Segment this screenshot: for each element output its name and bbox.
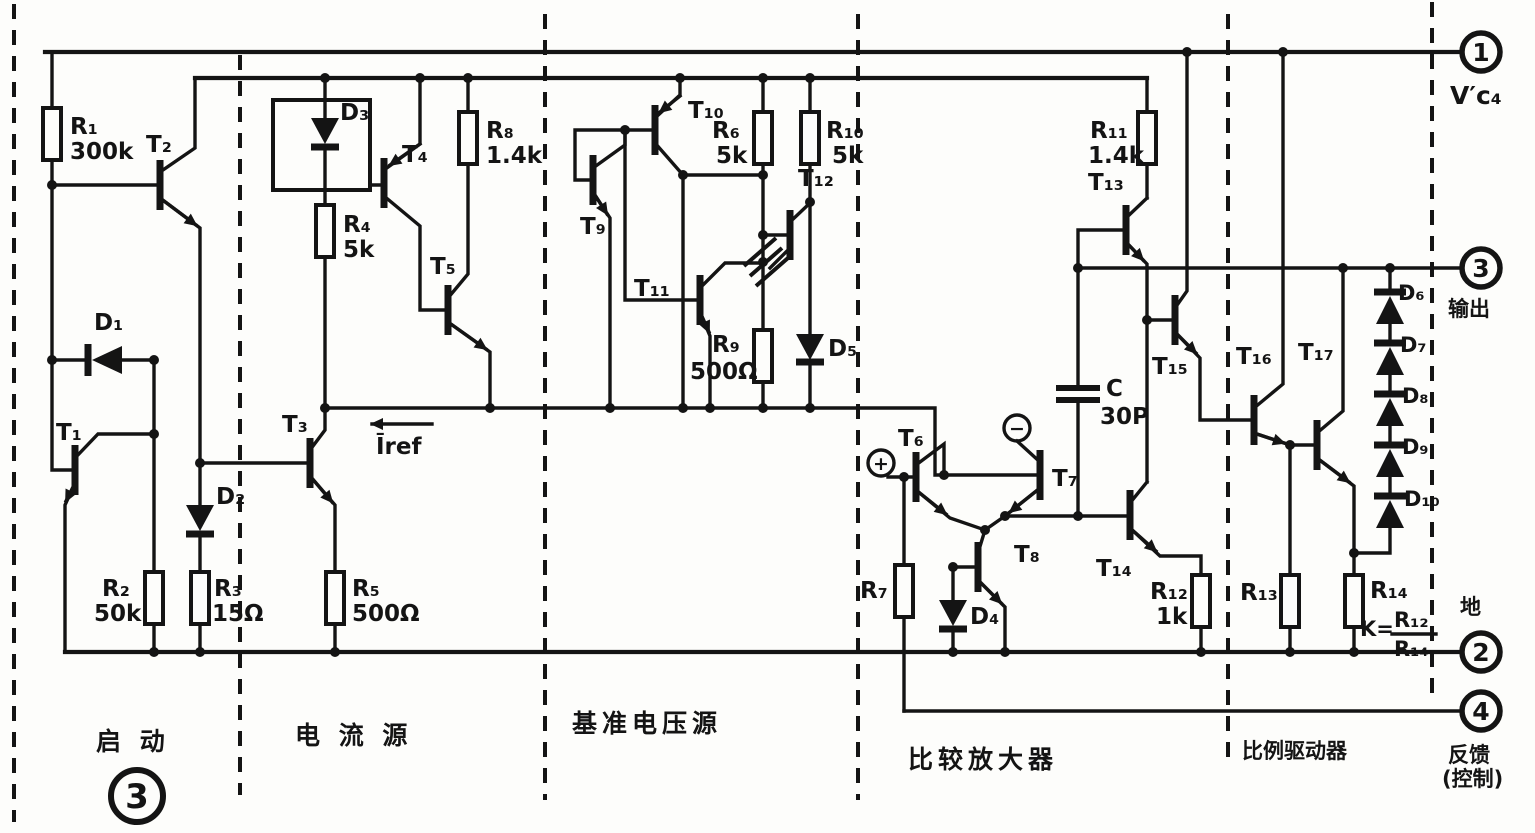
diode-D6-label: D₆	[1398, 281, 1425, 305]
transistor-T8-label: T₈	[1014, 542, 1040, 568]
transistor-T4-label: T₄	[402, 142, 428, 168]
resistor-R9: R₉ 500Ω	[690, 330, 772, 385]
iref-annotation: Īref	[372, 424, 432, 460]
resistor-R2: R₂ 50k	[94, 572, 163, 627]
transistor-T4: T₄	[384, 142, 428, 208]
transistor-T9: T₉	[580, 155, 606, 240]
resistor-R10: R₁₀ 5k	[801, 112, 864, 169]
transistor-T15-label: T₁₅	[1152, 354, 1188, 380]
diode-D3: D₃	[273, 100, 370, 190]
resistor-R2-value: 50k	[94, 601, 142, 627]
transistor-T16-label: T₁₆	[1236, 344, 1272, 370]
transistor-T6-label: T₆	[898, 426, 924, 452]
gain-formula-denominator: R₁₄	[1394, 637, 1429, 661]
resistor-R3-name: R₃	[214, 576, 242, 602]
diode-D4-label: D₄	[970, 604, 999, 630]
capacitor-C-value: 30P	[1100, 404, 1149, 430]
resistor-R12: R₁₂ 1k	[1150, 575, 1210, 630]
resistor-R11-name: R₁₁	[1090, 118, 1128, 144]
section-comparator-amplifier: 比较放大器	[908, 745, 1058, 774]
resistor-R11: R₁₁ 1.4k	[1088, 112, 1156, 169]
resistor-R5: R₅ 500Ω	[326, 572, 420, 627]
transistor-T2: T₂	[146, 132, 172, 210]
resistor-R10-value: 5k	[832, 143, 864, 169]
transistor-T9-label: T₉	[580, 214, 606, 240]
diode-D2-label: D₂	[216, 484, 245, 510]
resistor-R8-name: R₈	[486, 118, 514, 144]
resistor-R14-name: R₁₄	[1370, 578, 1408, 604]
minus-input-mark: −	[1009, 418, 1025, 440]
resistor-R8-value: 1.4k	[486, 143, 543, 169]
figure-number: 3	[125, 777, 149, 817]
resistor-R13: R₁₃	[1240, 575, 1299, 627]
transistor-T12-label: T₁₂	[798, 166, 834, 192]
diode-D1: D₁	[88, 310, 123, 376]
transistor-T7-label: T₇	[1052, 466, 1078, 492]
terminal-1-label: V′c₄	[1450, 81, 1502, 110]
resistor-R7-name: R₇	[860, 578, 888, 604]
transistor-T14: T₁₄	[1096, 490, 1132, 582]
circuit-schematic-canvas: T₁ T₂ T₃ T₄ T₅ T₆ T₇ T₈ T₉ T₁₀ T₁₁	[0, 0, 1535, 833]
iref-label: Īref	[376, 432, 422, 460]
resistor-R1-value: 300k	[70, 139, 134, 165]
terminal-1: 1 V′c₄	[1450, 33, 1502, 110]
diode-D1-label: D₁	[94, 310, 123, 336]
resistor-R12-value: 1k	[1156, 604, 1188, 630]
terminal-2: 2 地	[1460, 595, 1500, 671]
resistor-R6-value: 5k	[716, 143, 748, 169]
resistor-R6-name: R₆	[712, 118, 740, 144]
capacitor-C-name: C	[1106, 376, 1123, 402]
resistor-R3-value: 15Ω	[212, 601, 264, 627]
section-current-source: 电 流 源	[295, 721, 412, 750]
diode-chain: D₆ D₇ D₈ D₉ D₁₀	[1374, 281, 1440, 528]
resistor-R13-name: R₁₃	[1240, 580, 1278, 606]
terminal-1-number: 1	[1472, 38, 1489, 67]
diode-D10-label: D₁₀	[1404, 487, 1440, 511]
resistor-R6: R₆ 5k	[712, 112, 772, 169]
transistor-T17: T₁₇	[1298, 340, 1334, 470]
schematic-figure: T₁ T₂ T₃ T₄ T₅ T₆ T₇ T₈ T₉ T₁₀ T₁₁	[0, 0, 1535, 833]
comparator-input-marks: + −	[868, 415, 1030, 476]
resistor-R12-name: R₁₂	[1150, 579, 1188, 605]
diode-D2: D₂	[186, 484, 245, 534]
transistor-T7: T₇	[1040, 450, 1078, 500]
resistor-R9-value: 500Ω	[690, 359, 758, 385]
transistor-T16: T₁₆	[1236, 344, 1272, 445]
resistor-R3: R₃ 15Ω	[191, 572, 264, 627]
transistor-T5-label: T₅	[430, 254, 456, 280]
gain-formula-numerator: R₁₂	[1394, 608, 1429, 632]
section-startup: 启 动	[96, 727, 170, 756]
transistor-T13-label: T₁₃	[1088, 170, 1124, 196]
transistor-T1: T₁	[56, 420, 82, 495]
resistor-R14: R₁₄ K= R₁₂ R₁₄	[1345, 575, 1436, 661]
terminal-3-label: 输出	[1448, 297, 1490, 321]
diode-D4: D₄	[939, 600, 999, 630]
gain-formula-k: K=	[1360, 617, 1394, 641]
resistor-R7: R₇	[860, 565, 913, 617]
terminal-2-number: 2	[1472, 638, 1489, 667]
resistor-R5-name: R₅	[352, 576, 380, 602]
transistor-T13: T₁₃	[1088, 170, 1126, 255]
resistor-R4-value: 5k	[343, 237, 375, 263]
transistor-T14-label: T₁₄	[1096, 556, 1132, 582]
figure-number-badge: 3	[111, 770, 163, 822]
transistor-T11-label: T₁₁	[634, 276, 670, 302]
resistor-R8: R₈ 1.4k	[459, 112, 543, 169]
diode-D7-label: D₇	[1400, 333, 1427, 357]
diode-D9-label: D₉	[1402, 435, 1429, 459]
terminal-4: 4 反馈 (控制)	[1442, 692, 1503, 791]
transistor-T12: T₁₂	[744, 166, 834, 286]
resistor-R2-name: R₂	[102, 576, 130, 602]
resistor-R5-value: 500Ω	[352, 601, 420, 627]
plus-input-mark: +	[873, 453, 889, 475]
section-proportional-driver: 比例驱动器	[1242, 739, 1348, 763]
terminal-4-number: 4	[1472, 697, 1489, 726]
transistor-arrows	[66, 96, 1349, 603]
transistor-T3-label: T₃	[282, 412, 308, 438]
terminal-2-label: 地	[1460, 595, 1481, 619]
diode-D5-label: D₅	[828, 336, 857, 362]
capacitor-C: C 30P	[1056, 376, 1149, 430]
resistor-R1-name: R₁	[70, 114, 98, 140]
resistor-R1: R₁ 300k	[43, 108, 134, 165]
terminal-4-label: 反馈	[1448, 743, 1490, 767]
transistor-T17-label: T₁₇	[1298, 340, 1334, 366]
diode-D3-label: D₃	[340, 100, 369, 126]
section-captions: 启 动 电 流 源 基准电压源 比较放大器 比例驱动器	[96, 709, 1348, 774]
resistor-R10-name: R₁₀	[826, 118, 864, 144]
transistor-T2-label: T₂	[146, 132, 172, 158]
transistor-T1-label: T₁	[56, 420, 82, 446]
transistor-T3: T₃	[282, 412, 310, 488]
diode-D5: D₅	[796, 334, 857, 362]
resistor-R4-name: R₄	[343, 212, 371, 238]
resistor-R9-name: R₉	[712, 332, 740, 358]
transistor-T8: T₈	[978, 542, 1040, 592]
diode-D8-label: D₈	[1402, 384, 1429, 408]
terminal-3-number: 3	[1472, 254, 1489, 283]
resistor-R11-value: 1.4k	[1088, 143, 1145, 169]
terminal-3: 3 输出	[1448, 249, 1500, 321]
terminal-4-sublabel: (控制)	[1442, 767, 1503, 791]
section-voltage-reference: 基准电压源	[572, 709, 722, 738]
resistor-R4: R₄ 5k	[316, 205, 375, 263]
